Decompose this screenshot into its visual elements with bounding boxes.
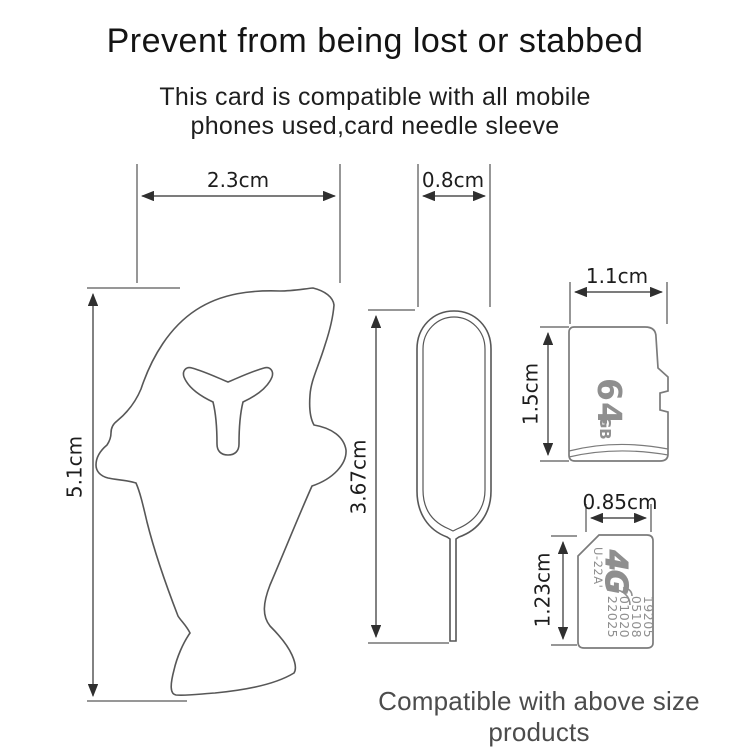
sim-width-label: 0.85cm xyxy=(582,490,657,514)
eject-pin xyxy=(417,311,491,641)
eject-pin-outer-outline xyxy=(417,311,491,641)
nano-sim-card: 4G U-22A' 19205 05108 01020 22025 xyxy=(578,535,656,648)
sleeve-height-label: 5.1cm xyxy=(63,436,87,498)
sim-serial-line: 22025 xyxy=(605,596,620,638)
product-size-infographic: Prevent from being lost or stabbed This … xyxy=(0,0,750,750)
sd-height-dimension: 1.5cm xyxy=(519,327,570,461)
pin-width-label: 0.8cm xyxy=(422,168,484,192)
dolphin-sleeve-outline xyxy=(96,288,346,695)
sleeve-width-label: 2.3cm xyxy=(207,168,269,192)
sd-height-label: 1.5cm xyxy=(519,363,543,425)
pin-height-label: 3.67cm xyxy=(347,439,371,514)
sim-height-dimension: 1.23cm xyxy=(531,536,578,645)
size-diagram: 64 GB 4G U-22A' 19205 05108 01020 22025 xyxy=(0,0,750,750)
sd-capacity-unit-label: GB xyxy=(596,416,614,440)
pin-width-dimension: 0.8cm xyxy=(418,164,490,307)
micro-sd-card: 64 GB xyxy=(569,327,668,461)
sim-model-label: U-22A' xyxy=(591,547,605,588)
sd-width-dimension: 1.1cm xyxy=(570,264,667,324)
sd-width-label: 1.1cm xyxy=(586,264,648,288)
sleeve-width-dimension: 2.3cm xyxy=(137,164,340,283)
sim-width-dimension: 0.85cm xyxy=(582,490,657,532)
sim-height-label: 1.23cm xyxy=(531,552,555,627)
